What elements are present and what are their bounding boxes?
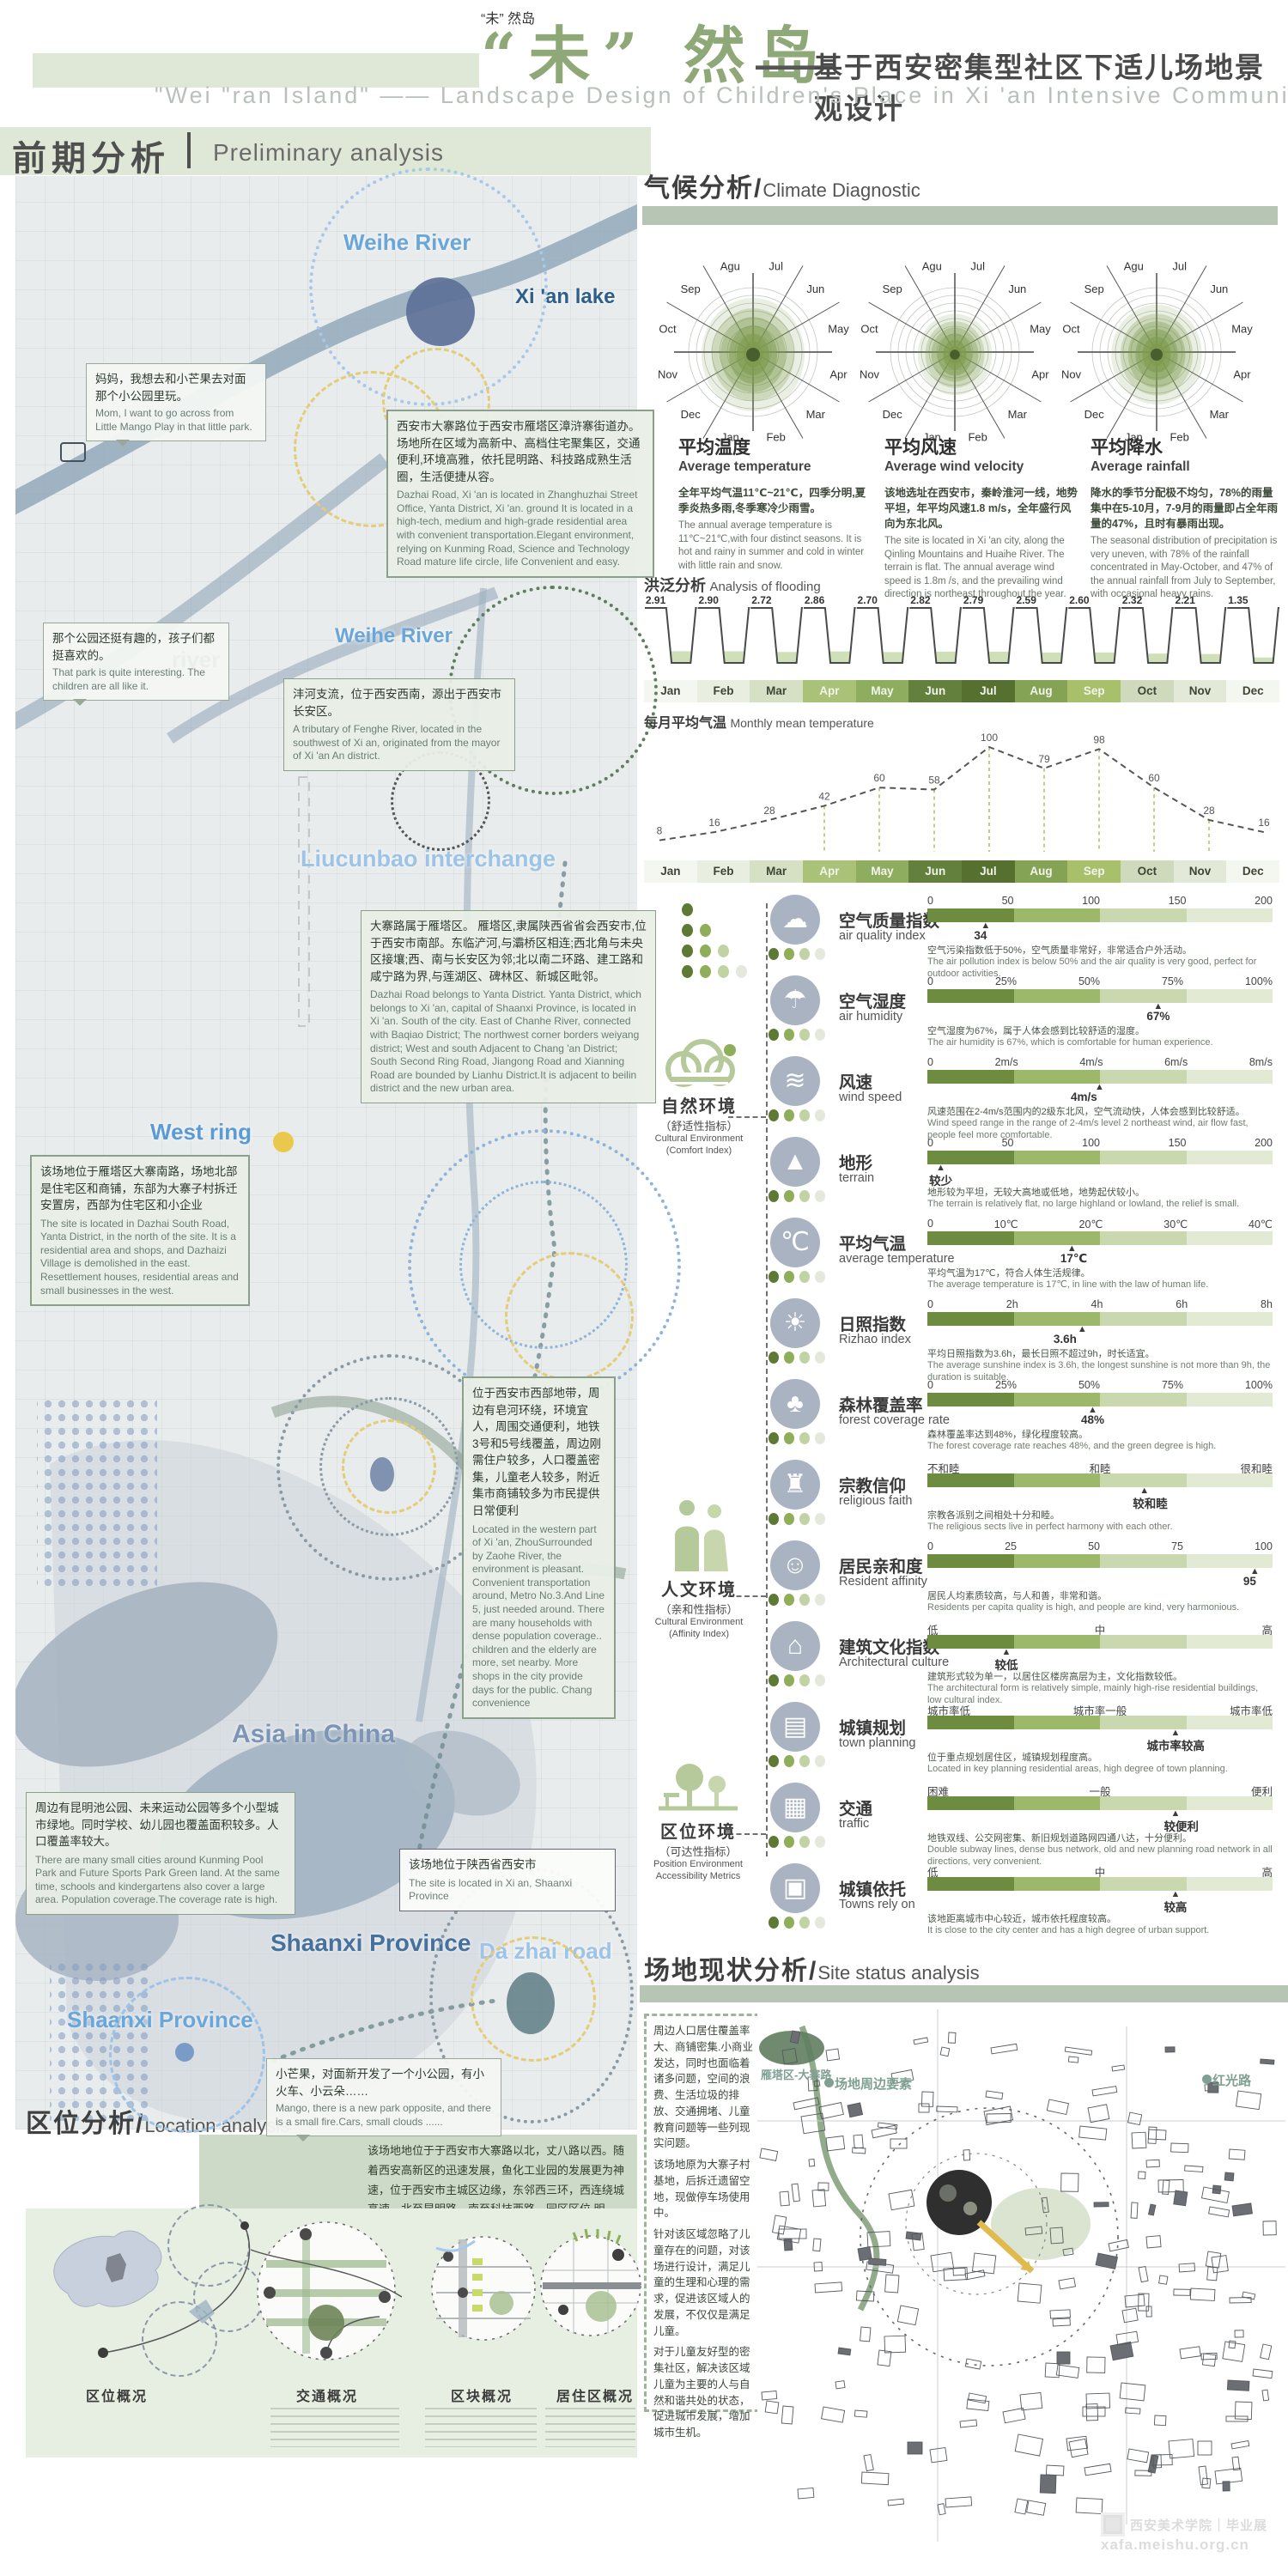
group-connector-vertical xyxy=(766,903,768,1856)
site-status-title-cn: 场地现状分析/ xyxy=(644,1957,817,1985)
anno-text-en: Located in the western part of Xi 'an, Z… xyxy=(472,1523,605,1710)
wind-icon: ≋ xyxy=(770,1056,820,1106)
avg-wind-desc-cn: 该地选址在西安市，秦岭淮河一线，地势平坦，年平均风速1.8 m/s，全年盛行风向… xyxy=(884,485,1078,532)
indicator-row-average-temperature: ℃ 平均气温 average temperature 010℃20℃30℃40℃… xyxy=(640,1216,1288,1297)
indicator-desc-cn: 平均日照指数为3.6h，最长日照不超过9h，时长适宜。 xyxy=(927,1348,1273,1360)
month-cell: Nov xyxy=(1174,860,1227,883)
focus-circle-yellow-4 xyxy=(342,1419,436,1514)
rating-dots xyxy=(769,1917,830,1933)
anno-text-cn: 该场地位于陕西省西安市 xyxy=(409,1856,606,1874)
indicator-scale: 0255075100 xyxy=(927,1540,1273,1553)
map-label-asia-in-china: Asia in China xyxy=(232,1720,395,1749)
site-text-paragraph: 该场地原为大寨子村基地，后拆迁遗留空地，现做停车场使用中。 xyxy=(653,2157,758,2221)
indicator-marker: ▲ 95 xyxy=(927,1568,1273,1590)
indicator-bar-block: 困难一般便利 ▲ 较便利 地铁双线、公交网密集、新旧规划道路网四通八达，十分便利… xyxy=(927,1783,1273,1868)
indicator-bar-block: 010℃20℃30℃40℃ ▲ 17℃ 平均气温为17℃，符合人体生活规律。 T… xyxy=(927,1218,1273,1291)
zoom-chain-line xyxy=(60,2208,283,2363)
svg-text:Nov: Nov xyxy=(658,368,678,381)
indicator-bar-block: 不和睦和睦很和睦 ▲ 较和睦 宗教各派别之间相处十分和睦。 The religi… xyxy=(927,1460,1273,1534)
indicator-title-cn: 空气质量指数 xyxy=(839,907,939,932)
seal-icon xyxy=(1101,2512,1125,2537)
rating-dots xyxy=(769,1594,830,1610)
svg-text:Jun: Jun xyxy=(1008,283,1026,295)
indicator-bar xyxy=(927,1393,1273,1406)
svg-text:Sep: Sep xyxy=(1084,283,1104,295)
indicator-bar xyxy=(927,1716,1273,1729)
svg-text:2.70: 2.70 xyxy=(858,596,878,606)
indicator-row-rizhao-index: ☀ 日照指数 Rizhao index 02h4h6h8h ▲ 3.6h 平均日… xyxy=(640,1297,1288,1377)
map-bubble-mom: 妈妈，我想去和小芒果去对面那个小公园里玩。 Mom, I want to go … xyxy=(86,363,266,441)
rating-dots xyxy=(769,1755,830,1771)
svg-text:Sep: Sep xyxy=(681,283,701,295)
rating-dots xyxy=(769,1432,830,1449)
indicator-bar xyxy=(927,1877,1273,1891)
indicator-marker: ▲ 3.6h xyxy=(927,1326,1273,1348)
forest-icon: ♣ xyxy=(770,1379,820,1429)
indicator-marker: ▲ 较便利 xyxy=(927,1810,1273,1832)
svg-text:Apr: Apr xyxy=(829,368,848,381)
indicator-marker: ▲ 较少 xyxy=(927,1164,1273,1187)
indicator-title-en: Towns rely on xyxy=(839,1898,915,1911)
poster-subtitle-en: "Wei "ran Island" —— Landscape Design of… xyxy=(155,82,1279,109)
indicator-desc-cn: 位于重点规划居住区，城镇规划程度高。 xyxy=(927,1752,1273,1764)
month-cell: Jul xyxy=(962,860,1015,883)
indicator-bar-block: 050100150200 ▲ 34 空气污染指数低于50%，空气质量非常好，非常… xyxy=(927,895,1273,981)
air-quality-icon: ☁ xyxy=(770,895,820,945)
temp-line-svg: 816284260581007998602816 xyxy=(644,730,1279,859)
site-status-title-en: Site status analysis xyxy=(817,1962,979,1984)
marker-value: 34 xyxy=(974,929,987,942)
traffic-light-icon: ▦ xyxy=(770,1783,820,1832)
marker-value: 较少 xyxy=(929,1171,952,1188)
location-env-en2: Accessibility Metrics xyxy=(641,1871,756,1883)
indicator-scale: 025%50%75%100% xyxy=(927,975,1273,988)
month-cell: Aug xyxy=(1015,680,1068,702)
indicator-scale: 不和睦和睦很和睦 xyxy=(927,1460,1273,1473)
indicator-bar-block: 025%50%75%100% ▲ 67% 空气湿度为67%，属于人体会感到比较舒… xyxy=(927,975,1273,1049)
map-anno-shaanxi: 该场地位于陕西省西安市 The site is located in Xi an… xyxy=(399,1849,616,1911)
svg-text:2.79: 2.79 xyxy=(963,596,984,606)
plan-icon: ▤ xyxy=(770,1702,820,1752)
avg-temp-desc-en: The annual average temperature is 11℃~21… xyxy=(678,519,867,573)
indicator-title-cn: 城镇规划 xyxy=(839,1714,906,1739)
indicator-scale: 02h4h6h8h xyxy=(927,1298,1273,1311)
monthly-title-cn: 每月平均气温 xyxy=(644,716,726,731)
label-dot-icon xyxy=(1202,2075,1212,2084)
indicator-title-en: air quality index xyxy=(839,929,926,943)
svg-text:2.91: 2.91 xyxy=(646,596,666,606)
month-cell: Feb xyxy=(697,680,750,702)
watermark: 西安美术学院｜毕业展 xafa.meishu.org.cn xyxy=(1101,2512,1267,2554)
indicator-desc-cn: 地形较为平坦，无较大高地或低地，地势起伏较小。 xyxy=(927,1187,1273,1199)
svg-text:28: 28 xyxy=(1203,805,1215,817)
cloud-icon xyxy=(658,1035,740,1088)
svg-text:2.90: 2.90 xyxy=(699,596,720,606)
avg-temperature-block: 平均温度 Average temperature 全年平均气温11℃~21℃，四… xyxy=(678,434,867,573)
svg-text:79: 79 xyxy=(1038,753,1050,765)
thermometer-icon: ℃ xyxy=(770,1218,820,1267)
indicator-bar-block: 050100150200 ▲ 较少 地形较为平坦，无较大高地或低地，地势起伏较小… xyxy=(927,1137,1273,1211)
bubble-text-en: Mom, I want to go across from Little Man… xyxy=(95,407,257,434)
marker-value: 较低 xyxy=(994,1656,1018,1673)
rating-dots xyxy=(769,1352,830,1368)
svg-text:16: 16 xyxy=(1258,817,1270,829)
indicator-desc-cn: 建筑形式较为单一，以居住区楼房高层为主，文化指数较低。 xyxy=(927,1671,1273,1683)
indicator-title-cn: 建筑文化指数 xyxy=(839,1633,939,1658)
svg-text:Mar: Mar xyxy=(1210,408,1230,421)
indicator-bar-block: 0255075100 ▲ 95 居民人均素质较高，与人和善，非常和谐。 Resi… xyxy=(927,1540,1273,1614)
indicator-bar-block: 低中高 ▲ 较低 建筑形式较为单一，以居住区楼房高层为主，文化指数较低。 The… xyxy=(927,1621,1273,1707)
flooding-header: 洪泛分析 Analysis of flooding xyxy=(644,574,821,596)
svg-text:1.35: 1.35 xyxy=(1228,596,1249,606)
indicator-marker: ▲ 17℃ xyxy=(927,1245,1273,1267)
indicator-marker: ▲ 城市率较高 xyxy=(927,1729,1273,1752)
indicator-scale: 010℃20℃30℃40℃ xyxy=(927,1218,1273,1230)
indicator-title-cn: 平均气温 xyxy=(839,1230,906,1255)
marker-value: 城市率较高 xyxy=(1146,1736,1205,1753)
flooding-title-cn: 洪泛分析 xyxy=(644,577,706,594)
map-bubble-park: 那个公园还挺有趣的，孩子们都挺喜欢的。 That park is quite i… xyxy=(43,623,229,701)
indicator-title-cn: 城镇依托 xyxy=(839,1875,906,1900)
indicator-title-en: wind speed xyxy=(839,1091,902,1104)
month-cell: Dec xyxy=(1226,860,1279,883)
indicator-row-forest-coverage-rate: ♣ 森林覆盖率 forest coverage rate 025%50%75%1… xyxy=(640,1377,1288,1458)
svg-text:Jul: Jul xyxy=(1172,260,1187,273)
monthly-temp-header: 每月平均气温 Monthly mean temperature xyxy=(644,711,874,732)
svg-text:Dec: Dec xyxy=(1084,408,1105,421)
traffic-diagram xyxy=(251,2215,402,2366)
svg-text:May: May xyxy=(1030,322,1051,335)
site-map-label-yanta-dazhai: 雁塔区-大寨路 xyxy=(761,2066,831,2082)
indicator-desc-en: The religious sects live in perfect harm… xyxy=(927,1522,1273,1534)
humidity-icon: ☂ xyxy=(770,975,820,1025)
indicator-bar xyxy=(927,1151,1273,1164)
indicator-marker: ▲ 较和睦 xyxy=(927,1487,1273,1510)
rating-dots xyxy=(769,1674,830,1691)
svg-text:8: 8 xyxy=(657,825,663,837)
checkbox-shape xyxy=(60,442,86,462)
anno-text-en: The site is located in Dazhai South Road… xyxy=(40,1218,240,1298)
svg-text:Mar: Mar xyxy=(1008,408,1028,421)
svg-text:98: 98 xyxy=(1093,733,1105,745)
site-status-band xyxy=(640,1985,1288,2002)
diagram-label-residential: 居住区概况 xyxy=(556,2385,634,2405)
anno-text-en: A tributary of Fenghe River, located in … xyxy=(293,723,506,763)
svg-text:2.59: 2.59 xyxy=(1017,596,1037,606)
svg-text:Jul: Jul xyxy=(769,260,783,273)
climate-band xyxy=(642,206,1278,225)
focus-circle-yellow-5 xyxy=(471,1936,596,2062)
map-label-west-ring: West ring xyxy=(150,1119,252,1145)
indicator-desc-en: It is close to the city center and has a… xyxy=(927,1925,1273,1937)
indicator-desc-cn: 森林覆盖率达到48%，绿化程度较高。 xyxy=(927,1429,1273,1441)
site-text-paragraph: 对于儿童友好型的密集社区，解决该区域儿童为主要的人与自然和谐共处的状态，促进城市… xyxy=(653,2344,758,2441)
monthly-title-en: Monthly mean temperature xyxy=(730,716,873,730)
indicator-bar xyxy=(927,1796,1273,1810)
svg-text:Dec: Dec xyxy=(883,408,903,421)
people-icon: ☺ xyxy=(770,1540,820,1590)
church-icon: ♜ xyxy=(770,1460,820,1510)
svg-text:May: May xyxy=(1231,322,1253,335)
bubble-text-cn: 那个公园还挺有趣的，孩子们都挺喜欢的。 xyxy=(52,630,220,664)
indicator-scale: 城市率低城市率一般城市率低 xyxy=(927,1702,1273,1715)
focus-circle-yellow-3 xyxy=(505,1252,634,1381)
svg-text:42: 42 xyxy=(818,790,830,802)
avg-rain-title-cn: 平均降水 xyxy=(1091,434,1284,459)
preliminary-band: 前期分析 Preliminary analysis xyxy=(0,127,651,175)
poster: “未” 然岛 “未” 然岛 —— 基于西安密集型社区下适儿场地景观设计 "Wei… xyxy=(0,0,1288,2576)
marker-value: 较便利 xyxy=(1163,1817,1199,1834)
indicator-bar xyxy=(927,908,1273,922)
month-strip-flooding: JanFebMarAprMayJunJulAugSepOctNovDec xyxy=(644,680,1279,702)
site-status-header: 场地现状分析/Site status analysis xyxy=(644,1949,980,1987)
svg-text:2.21: 2.21 xyxy=(1176,596,1196,606)
climate-header: 气候分析/Climate Diagnostic xyxy=(644,167,920,204)
location-env-sub: （可达性指标） xyxy=(641,1843,756,1859)
month-strip-temperature: JanFebMarAprMayJunJulAugSepOctNovDec xyxy=(644,860,1279,883)
month-cell: Jun xyxy=(908,860,962,883)
svg-text:Apr: Apr xyxy=(1233,368,1251,381)
indicator-bar-block: 低中高 ▲ 较高 该地距离城市中心较近，城市依托程度较高。 It is clos… xyxy=(927,1863,1273,1937)
indicator-scale: 050100150200 xyxy=(927,895,1273,908)
building-icon: ⌂ xyxy=(770,1621,820,1671)
indicator-desc-cn: 居民人均素质较高，与人和善，非常和谐。 xyxy=(927,1590,1273,1602)
anno-text-en: Dazhai Road belongs to Yanta District. Y… xyxy=(370,988,647,1096)
park-tree-icon xyxy=(657,1759,739,1814)
indicator-desc-en: The air humidity is 67%, which is comfor… xyxy=(927,1037,1273,1049)
terrain-icon: ▲ xyxy=(770,1137,820,1187)
flooding-chart: 2.912.902.722.862.702.822.792.592.602.32… xyxy=(644,596,1279,677)
svg-text:Agu: Agu xyxy=(922,260,942,273)
site-map-label-hongguang-road: 红光路 xyxy=(1212,2071,1251,2089)
watermark-text: 西安美术学院｜毕业展 xyxy=(1130,2516,1267,2534)
indicator-scale: 050100150200 xyxy=(927,1137,1273,1150)
marker-triangle-icon: ▲ xyxy=(1078,1324,1087,1334)
svg-text:Nov: Nov xyxy=(860,368,880,381)
svg-text:2.86: 2.86 xyxy=(805,596,825,606)
nature-env-sub: （舒适性指标） xyxy=(642,1117,756,1133)
indicator-title-cn: 交通 xyxy=(839,1795,872,1820)
marker-value: 48% xyxy=(1081,1413,1104,1426)
anno-text-en: Dazhai Road, Xi 'an is located in Zhangh… xyxy=(397,489,644,569)
human-env-sub: （亲和性指标） xyxy=(642,1601,756,1617)
svg-text:2.82: 2.82 xyxy=(910,596,931,606)
map-anno-site-west: 该场地位于雁塔区大寨南路，场地北部是住宅区和商铺，东部为大寨子村拆迁安置房，西部… xyxy=(30,1155,250,1306)
month-cell: Nov xyxy=(1174,680,1227,702)
bubble-text-cn: 小芒果，对面新开发了一个小公园，有小火车、小云朵…… xyxy=(276,2066,492,2099)
human-env-group: 人文环境 （亲和性指标） Cultural Environment (Affin… xyxy=(642,1496,756,1641)
indicator-title-en: traffic xyxy=(839,1817,869,1831)
anno-text-en: There are many small cities around Kunmi… xyxy=(35,1854,286,1907)
indicator-desc-cn: 宗教各派别之间相处十分和睦。 xyxy=(927,1510,1273,1522)
indicator-scale: 02m/s4m/s6m/s8m/s xyxy=(927,1056,1273,1069)
caption-lines-decoration xyxy=(545,2408,635,2447)
site-text-paragraph: 针对该区域忽略了儿童存在的问题，对该场进行设计，满足儿童的生理和心理的需求，促进… xyxy=(653,2227,758,2339)
anno-text-cn: 沣河支流，位于西安西南，源出于西安市长安区。 xyxy=(293,686,506,720)
avg-wind-title-cn: 平均风速 xyxy=(884,434,1078,459)
month-cell: Jun xyxy=(908,680,962,702)
diagram-label-location: 区位概况 xyxy=(86,2385,148,2405)
indicator-title-cn: 森林覆盖率 xyxy=(839,1391,923,1416)
avg-wind-block: 平均风速 Average wind velocity 该地选址在西安市，秦岭淮河… xyxy=(884,434,1078,602)
marker-value: 17℃ xyxy=(1060,1252,1087,1266)
month-cell: Mar xyxy=(750,680,803,702)
indicator-marker: ▲ 34 xyxy=(927,922,1273,945)
monthly-temp-chart: 816284260581007998602816 xyxy=(644,730,1279,859)
svg-text:58: 58 xyxy=(928,775,940,787)
rating-dots xyxy=(769,1190,830,1206)
month-cell: Oct xyxy=(1121,680,1174,702)
watermark-url: xafa.meishu.org.cn xyxy=(1101,2537,1267,2554)
indicator-desc-cn: 平均气温为17℃，符合人体生活规律。 xyxy=(927,1267,1273,1279)
map-label-liucunbao: Liucunbao interchange xyxy=(301,846,556,872)
map-label-weihe-river-2: Weihe River xyxy=(335,624,453,648)
svg-text:100: 100 xyxy=(981,732,998,744)
anno-text-en: The site is located in Xi an, Shaanxi Pr… xyxy=(409,1877,606,1904)
indicator-marker: ▲ 67% xyxy=(927,1003,1273,1025)
indicator-title-en: town planning xyxy=(839,1736,916,1750)
rating-dots xyxy=(769,1109,830,1126)
rating-dots xyxy=(769,1513,830,1529)
indicator-scale: 低中高 xyxy=(927,1863,1273,1876)
flooding-svg: 2.912.902.722.862.702.822.792.592.602.32… xyxy=(644,596,1279,677)
indicator-row-air-quality-index: ☁ 空气质量指数 air quality index 050100150200 … xyxy=(640,893,1288,974)
location-env-group: 区位环境 （可达性指标） Position Environment Access… xyxy=(641,1759,756,1883)
indicator-desc-cn: 风速范围在2-4m/s范围内的2级东北风，空气流动快，人体会感到比较舒适。 xyxy=(927,1106,1273,1118)
anno-text-cn: 大寨路属于雁塔区。 雁塔区,隶属陕西省省会西安市,位于西安市南部。东临浐河,与灞… xyxy=(370,918,647,985)
map-anno-fenghe: 沣河支流，位于西安西南，源出于西安市长安区。 A tributary of Fe… xyxy=(283,678,515,771)
indicator-marker: ▲ 4m/s xyxy=(927,1084,1273,1106)
flooding-title-en: Analysis of flooding xyxy=(709,580,820,594)
svg-text:Oct: Oct xyxy=(1062,322,1080,335)
caption-lines-decoration xyxy=(425,2408,537,2447)
svg-text:2.32: 2.32 xyxy=(1122,596,1143,606)
location-env-en1: Position Environment xyxy=(641,1859,756,1871)
month-cell: Sep xyxy=(1067,860,1121,883)
indicator-scale: 025%50%75%100% xyxy=(927,1379,1273,1392)
month-cell: Aug xyxy=(1015,860,1068,883)
elderly-couple-icon xyxy=(665,1496,733,1571)
svg-text:Agu: Agu xyxy=(720,260,740,273)
indicator-bar-block: 02m/s4m/s6m/s8m/s ▲ 4m/s 风速范围在2-4m/s范围内的… xyxy=(927,1056,1273,1142)
rating-dots xyxy=(769,1271,830,1287)
indicator-desc-en: Residents per capita quality is high, an… xyxy=(927,1602,1273,1614)
month-cell: Oct xyxy=(1121,860,1174,883)
block-diagram xyxy=(428,2233,539,2344)
indicator-scale: 低中高 xyxy=(927,1621,1273,1634)
indicator-bar xyxy=(927,1231,1273,1245)
svg-text:May: May xyxy=(828,322,849,335)
svg-text:Mar: Mar xyxy=(806,408,826,421)
indicator-marker: ▲ 较高 xyxy=(927,1891,1273,1913)
avg-rain-title-en: Average rainfall xyxy=(1091,459,1284,475)
svg-text:Oct: Oct xyxy=(659,322,677,335)
svg-text:Oct: Oct xyxy=(860,322,878,335)
map-anno-yanta-district: 大寨路属于雁塔区。 雁塔区,隶属陕西省省会西安市,位于西安市南部。东临浐河,与灞… xyxy=(361,910,656,1103)
nature-env-label: 自然环境 xyxy=(642,1092,756,1117)
location-panel: 区位概况 交通概况 区块概况 居住区概况 xyxy=(26,2208,637,2458)
avg-wind-title-en: Average wind velocity xyxy=(884,459,1078,475)
indicator-desc-cn: 空气污染指数低于50%，空气质量非常好，非常适合户外活动。 xyxy=(927,945,1273,957)
map-anno-dazhai-road-intro: 西安市大寨路位于西安市雁塔区漳浒寨街道办。场地所在区域为高新中、高档住宅聚集区，… xyxy=(386,410,654,578)
avg-temp-desc-cn: 全年平均气温11℃~21℃，四季分明,夏季炎热多雨,冬季寒冷少雨雪。 xyxy=(678,485,867,516)
marker-value: 67% xyxy=(1146,1010,1170,1023)
indicator-marker: ▲ 48% xyxy=(927,1406,1273,1429)
indicator-desc-cn: 地铁双线、公交网密集、新旧规划道路网四通八达，十分便利。 xyxy=(927,1832,1273,1844)
bubble-text-cn: 妈妈，我想去和小芒果去对面那个小公园里玩。 xyxy=(95,371,257,404)
sunshine-icon: ☀ xyxy=(770,1298,820,1348)
indicator-bar xyxy=(927,989,1273,1003)
indicator-scale: 困难一般便利 xyxy=(927,1783,1273,1795)
site-map: 场地周边要素 红光路 雁塔区-大寨路 xyxy=(757,2009,1285,2542)
location-title-cn: 区位分析/ xyxy=(26,2110,144,2138)
site-map-label-elements: 场地周边要素 xyxy=(835,2075,912,2093)
svg-text:Apr: Apr xyxy=(1031,368,1049,381)
human-env-en2: (Affinity Index) xyxy=(642,1629,756,1641)
title-divider xyxy=(187,132,191,168)
climate-title-cn: 气候分析/ xyxy=(644,174,762,203)
anno-text-cn: 周边有昆明池公园、未来运动公园等多个小型城市绿地。同时学校、幼儿园也覆盖面积较多… xyxy=(35,1800,286,1850)
residential-diagram xyxy=(539,2227,647,2339)
location-env-label: 区位环境 xyxy=(641,1818,756,1843)
indicator-bar-block: 02h4h6h8h ▲ 3.6h 平均日照指数为3.6h，最长日照不超过9h，时… xyxy=(927,1298,1273,1384)
month-cell: Apr xyxy=(803,860,856,883)
rating-dots xyxy=(769,1836,830,1852)
preliminary-title-cn: 前期分析 xyxy=(12,131,170,180)
indicator-title-cn: 日照指数 xyxy=(839,1310,906,1335)
indicator-bar-block: 025%50%75%100% ▲ 48% 森林覆盖率达到48%，绿化程度较高。 … xyxy=(927,1379,1273,1453)
indicator-bar-block: 城市率低城市率一般城市率低 ▲ 城市率较高 位于重点规划居住区，城镇规划程度高。… xyxy=(927,1702,1273,1776)
human-env-en1: Cultural Environment xyxy=(642,1617,756,1629)
map-anno-kunming-park: 周边有昆明池公园、未来运动公园等多个小型城市绿地。同时学校、幼儿园也覆盖面积较多… xyxy=(26,1792,295,1915)
month-cell: May xyxy=(856,680,909,702)
indicator-title-en: terrain xyxy=(839,1171,874,1185)
indicator-bar xyxy=(927,1554,1273,1568)
site-dot-yellow xyxy=(273,1132,294,1152)
bubble-text-en: That park is quite interesting. The chil… xyxy=(52,666,220,693)
anno-text-cn: 西安市大寨路位于西安市雁塔区漳浒寨街道办。场地所在区域为高新中、高档住宅聚集区，… xyxy=(397,418,644,485)
svg-text:60: 60 xyxy=(873,772,885,784)
avg-rain-desc-cn: 降水的季节分配极不均匀，78%的雨量集中在5-10月，7-9月的雨量即占全年雨量… xyxy=(1091,485,1284,532)
indicator-desc-cn: 该地距离城市中心较近，城市依托程度较高。 xyxy=(927,1913,1273,1925)
indicator-bar xyxy=(927,1312,1273,1326)
month-cell: Jul xyxy=(962,680,1015,702)
preliminary-title-en: Preliminary analysis xyxy=(213,139,444,167)
nature-env-group: 自然环境 （舒适性指标） Cultural Environment (Comfo… xyxy=(642,1035,756,1157)
indicator-title-cn: 空气湿度 xyxy=(839,987,906,1012)
indicator-bar xyxy=(927,1473,1273,1487)
avg-rainfall-block: 平均降水 Average rainfall 降水的季节分配极不均匀，78%的雨量… xyxy=(1091,434,1284,602)
svg-text:Nov: Nov xyxy=(1061,368,1082,381)
marker-value: 4m/s xyxy=(1071,1091,1097,1103)
indicator-title-cn: 宗教信仰 xyxy=(839,1472,906,1497)
svg-text:Jul: Jul xyxy=(970,260,985,273)
avg-temp-title-en: Average temperature xyxy=(678,459,867,475)
avg-rain-desc-en: The seasonal distribution of precipitati… xyxy=(1091,535,1284,602)
svg-text:16: 16 xyxy=(708,817,720,829)
svg-text:Jun: Jun xyxy=(806,283,824,295)
bubble-text-en: Mango, there is a new park opposite, and… xyxy=(276,2102,492,2129)
indicator-title-cn: 风速 xyxy=(839,1068,872,1093)
site-status-text-panel: 周边人口居住覆盖率大、商铺密集.小商业发达，同时也面临着诸多问题，空间的浪费、生… xyxy=(644,2014,768,2412)
indicator-marker: ▲ 较低 xyxy=(927,1649,1273,1671)
map-anno-west-zone: 位于西安市西部地带，周边有皂河环绕，环境宜人，周围交通便利，地铁3号和5号线覆盖… xyxy=(462,1376,616,1719)
month-cell: Jan xyxy=(644,860,697,883)
anno-text-cn: 位于西安市西部地带，周边有皂河环绕，环境宜人，周围交通便利，地铁3号和5号线覆盖… xyxy=(472,1385,605,1520)
rating-dots xyxy=(769,948,830,964)
marker-value: 较高 xyxy=(1163,1898,1187,1915)
month-cell: Apr xyxy=(803,680,856,702)
